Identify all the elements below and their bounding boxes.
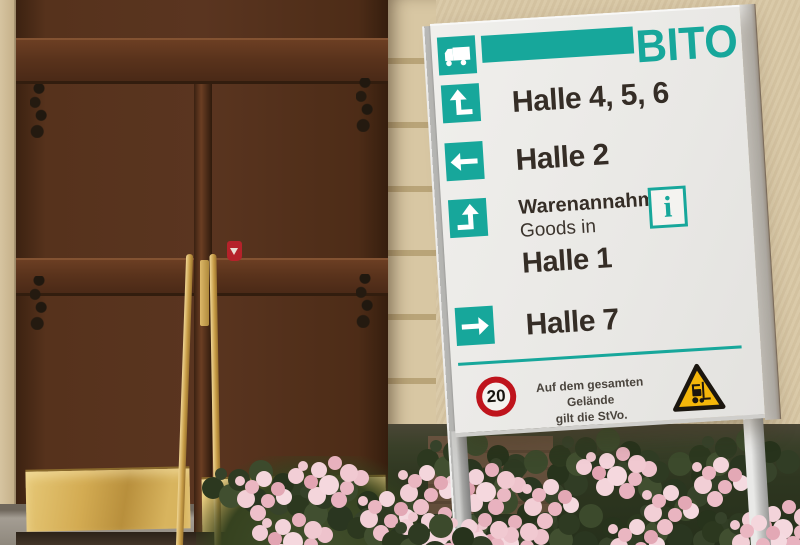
brand-logo: BITO bbox=[634, 18, 739, 70]
pink-roses bbox=[235, 476, 245, 486]
goods-in-label-de: Warenannahme bbox=[518, 189, 667, 218]
sign-panel: BITO Halle 4, 5, 6 Halle 2 bbox=[430, 5, 765, 437]
direction-label: Halle 7 bbox=[525, 305, 620, 341]
arrow-glyph bbox=[448, 144, 482, 178]
arrow-left-icon bbox=[444, 141, 484, 181]
direction-label: Halle 1 bbox=[521, 244, 613, 279]
arrow-up-turn-right-icon bbox=[441, 83, 481, 123]
ivy-leaves bbox=[300, 486, 312, 498]
brass-kick-plate bbox=[25, 466, 190, 531]
pink-roses bbox=[730, 520, 740, 530]
door-hinge bbox=[356, 274, 374, 328]
pink-roses bbox=[408, 512, 418, 522]
traffic-notice: Auf dem gesamten Gelände gilt die StVo. bbox=[518, 372, 663, 429]
speed-limit-sign: 20 bbox=[475, 375, 517, 417]
sign-post-right bbox=[743, 412, 772, 545]
bito-wayfinding-sign: BITO Halle 4, 5, 6 Halle 2 bbox=[430, 4, 788, 545]
ivy-leaves bbox=[395, 522, 407, 534]
brass-lock-plate bbox=[200, 260, 209, 326]
notice-line2: gilt die StVo. bbox=[555, 408, 628, 426]
warning-triangle-glyph bbox=[670, 360, 727, 413]
goods-in-label-en: Goods in bbox=[519, 217, 596, 241]
ivy-leaves bbox=[360, 508, 372, 520]
notice-line1: Auf dem gesamten Gelände bbox=[536, 374, 644, 409]
pink-roses bbox=[298, 461, 308, 471]
arrow-right-icon bbox=[455, 306, 495, 346]
pink-roses bbox=[358, 496, 368, 506]
forklift-warning-icon bbox=[670, 360, 727, 418]
door-hinge bbox=[30, 84, 48, 138]
arrow-glyph bbox=[458, 309, 492, 343]
ivy-leaves bbox=[215, 468, 227, 480]
speed-limit-value: 20 bbox=[486, 386, 506, 407]
door-top-rail bbox=[16, 38, 388, 84]
direction-label: Halle 4, 5, 6 bbox=[511, 78, 669, 118]
entrance-photo-scene: BITO Halle 4, 5, 6 Halle 2 bbox=[0, 0, 800, 545]
pink-roses bbox=[262, 518, 272, 528]
ivy-leaves bbox=[430, 440, 442, 452]
arrow-up-turn-left-icon bbox=[448, 198, 488, 238]
door-hinge bbox=[30, 276, 48, 330]
truck-icon bbox=[437, 35, 477, 75]
red-door-sticker bbox=[227, 241, 242, 261]
door-hinge bbox=[356, 78, 374, 132]
arrow-glyph bbox=[444, 86, 478, 120]
header-teal-bar bbox=[481, 26, 634, 62]
info-icon: i bbox=[648, 185, 688, 228]
pink-roses bbox=[398, 470, 408, 480]
direction-label: Halle 2 bbox=[515, 140, 610, 176]
pink-roses bbox=[448, 518, 458, 528]
arrow-glyph bbox=[451, 201, 485, 235]
truck-icon-glyph bbox=[440, 38, 474, 72]
